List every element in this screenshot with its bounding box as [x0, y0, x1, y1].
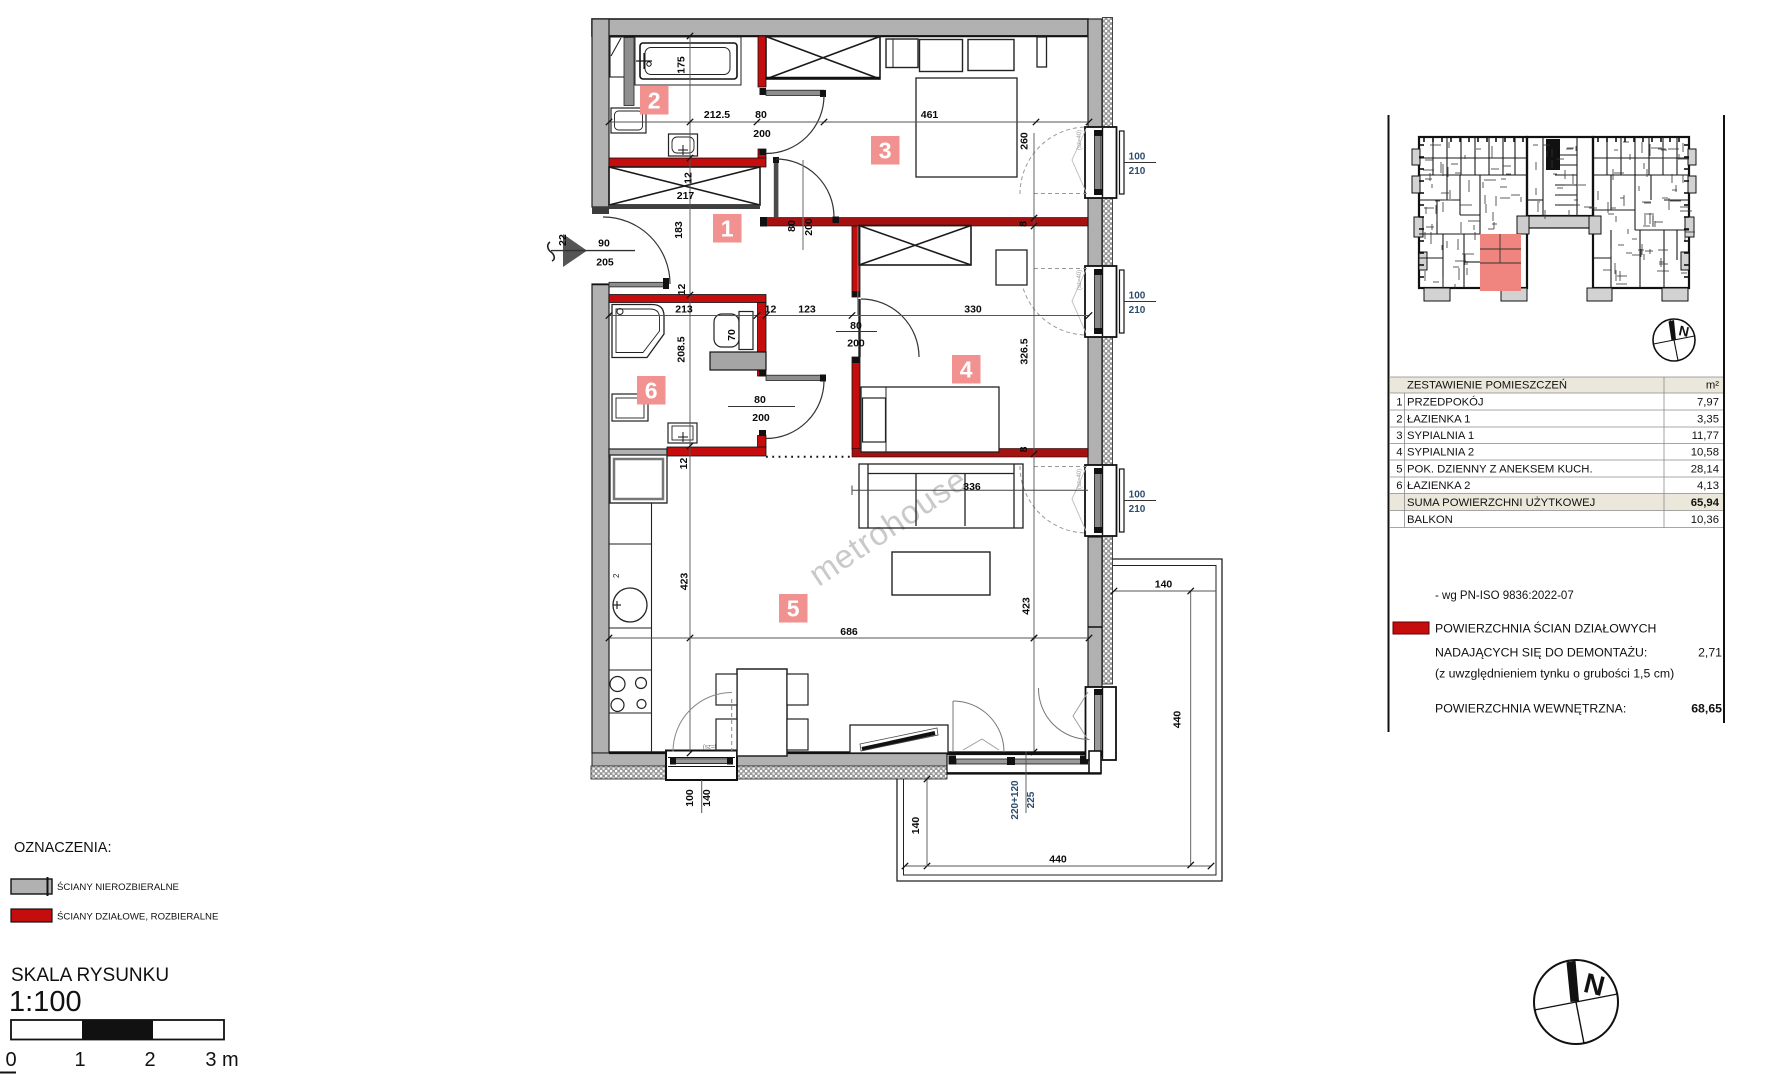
svg-text:175: 175: [676, 56, 688, 74]
svg-text:208.5: 208.5: [676, 336, 688, 362]
svg-text:ŁAZIENKA 2: ŁAZIENKA 2: [1407, 480, 1470, 492]
svg-text:28,14: 28,14: [1691, 464, 1719, 476]
svg-text:123: 123: [798, 304, 816, 316]
svg-text:3: 3: [1396, 430, 1402, 442]
svg-text:1: 1: [74, 1049, 85, 1071]
svg-text:330: 330: [964, 304, 982, 316]
svg-text:8: 8: [1018, 446, 1030, 452]
svg-text:68,65: 68,65: [1691, 702, 1722, 716]
svg-text:(sz=40): (sz=40): [1077, 130, 1083, 150]
svg-text:4: 4: [1396, 447, 1402, 459]
svg-text:ŚCIANY DZIAŁOWE, ROZBIERALNE: ŚCIANY DZIAŁOWE, ROZBIERALNE: [57, 911, 218, 923]
svg-text:2: 2: [612, 573, 621, 578]
svg-text:m²: m²: [1706, 380, 1719, 392]
svg-text:ŁAZIENKA 1: ŁAZIENKA 1: [1407, 414, 1470, 426]
svg-text:10,36: 10,36: [1691, 514, 1719, 526]
svg-text:423: 423: [679, 573, 691, 591]
svg-text:1:100: 1:100: [9, 986, 82, 1018]
svg-text:ZESTAWIENIE POMIESZCZEŃ: ZESTAWIENIE POMIESZCZEŃ: [1407, 379, 1567, 392]
svg-text:OZNACZENIA:: OZNACZENIA:: [14, 840, 111, 856]
svg-text:BALKON: BALKON: [1407, 514, 1453, 526]
svg-text:140: 140: [701, 789, 713, 807]
svg-text:11,77: 11,77: [1692, 430, 1719, 442]
svg-text:2: 2: [648, 88, 661, 114]
svg-text:225: 225: [1026, 791, 1037, 808]
svg-text:200: 200: [752, 412, 770, 424]
svg-text:217: 217: [677, 190, 695, 202]
svg-text:80: 80: [786, 220, 798, 232]
svg-text:SUMA POWIERZCHNI UŻYTKOWEJ: SUMA POWIERZCHNI UŻYTKOWEJ: [1407, 496, 1595, 509]
svg-text:2: 2: [1396, 414, 1402, 426]
svg-text:0: 0: [5, 1049, 16, 1071]
svg-text:8: 8: [1018, 221, 1030, 227]
svg-text:2,71: 2,71: [1698, 646, 1722, 660]
svg-text:POWIERZCHNIA WEWNĘTRZNA:: POWIERZCHNIA WEWNĘTRZNA:: [1435, 702, 1626, 716]
svg-text:(sz=40): (sz=40): [1077, 270, 1083, 290]
svg-text:461: 461: [921, 109, 939, 121]
svg-text:SYPIALNIA 1: SYPIALNIA 1: [1407, 430, 1474, 442]
svg-text:686: 686: [840, 626, 858, 638]
svg-text:100: 100: [1129, 291, 1146, 302]
svg-text:423: 423: [1021, 597, 1033, 615]
svg-text:1: 1: [721, 216, 734, 242]
svg-text:220+120: 220+120: [1010, 780, 1021, 820]
svg-text:3: 3: [879, 138, 892, 164]
svg-text:100: 100: [684, 789, 696, 807]
svg-text:440: 440: [1172, 711, 1184, 729]
svg-text:- wg PN-ISO 9836:2022-07: - wg PN-ISO 9836:2022-07: [1435, 590, 1574, 602]
svg-text:336: 336: [963, 481, 981, 493]
svg-text:100: 100: [1129, 490, 1146, 501]
svg-text:6: 6: [645, 378, 658, 404]
svg-text:12: 12: [676, 284, 688, 296]
svg-text:12: 12: [765, 304, 777, 316]
svg-text:4: 4: [960, 357, 973, 383]
svg-text:183: 183: [673, 221, 685, 239]
svg-text:3 m: 3 m: [205, 1049, 238, 1071]
svg-text:NADAJĄCYCH SIĘ DO DEMONTAŻU:: NADAJĄCYCH SIĘ DO DEMONTAŻU:: [1435, 646, 1647, 660]
svg-text:80: 80: [754, 394, 766, 406]
svg-text:3,35: 3,35: [1697, 414, 1719, 426]
svg-text:200: 200: [847, 338, 865, 350]
svg-text:210: 210: [1129, 166, 1146, 177]
svg-text:1: 1: [1396, 397, 1402, 409]
svg-text:326.5: 326.5: [1019, 338, 1031, 364]
svg-text:213: 213: [675, 304, 693, 316]
svg-text:140: 140: [1155, 579, 1173, 591]
svg-text:SKALA RYSUNKU: SKALA RYSUNKU: [11, 965, 169, 986]
svg-text:(sz=40): (sz=40): [1077, 469, 1083, 489]
svg-text:260: 260: [1019, 132, 1031, 150]
svg-text:200: 200: [803, 218, 815, 236]
svg-text:22: 22: [557, 234, 569, 246]
svg-text:65,94: 65,94: [1691, 497, 1720, 509]
svg-text:4,13: 4,13: [1697, 480, 1719, 492]
svg-text:70: 70: [726, 329, 738, 341]
svg-text:12: 12: [678, 458, 690, 470]
svg-text:210: 210: [1129, 305, 1146, 316]
svg-text:7,97: 7,97: [1697, 397, 1719, 409]
svg-text:6: 6: [1396, 480, 1402, 492]
svg-text:90: 90: [598, 238, 610, 250]
svg-text:PRZEDPOKÓJ: PRZEDPOKÓJ: [1407, 396, 1484, 409]
svg-text:5: 5: [787, 596, 800, 622]
svg-text:POWIERZCHNIA ŚCIAN DZIAŁOWYCH: POWIERZCHNIA ŚCIAN DZIAŁOWYCH: [1435, 621, 1656, 636]
svg-text:80: 80: [850, 320, 862, 332]
svg-text:200: 200: [753, 128, 771, 140]
svg-text:2: 2: [144, 1049, 155, 1071]
svg-text:440: 440: [1049, 854, 1067, 866]
svg-text:205: 205: [596, 257, 614, 269]
svg-text:140: 140: [910, 817, 922, 835]
svg-text:210: 210: [1129, 504, 1146, 515]
svg-text:100: 100: [1129, 152, 1146, 163]
svg-text:10,58: 10,58: [1691, 447, 1719, 459]
svg-text:(z uwzględnieniem tynku o grub: (z uwzględnieniem tynku o grubości 1,5 c…: [1435, 667, 1674, 681]
svg-text:12: 12: [683, 172, 695, 184]
svg-text:ŚCIANY NIEROZBIERALNE: ŚCIANY NIEROZBIERALNE: [57, 881, 179, 893]
svg-text:5: 5: [1396, 464, 1402, 476]
svg-text:SYPIALNIA 2: SYPIALNIA 2: [1407, 447, 1474, 459]
svg-text:80: 80: [755, 109, 767, 121]
svg-text:212.5: 212.5: [704, 109, 730, 121]
svg-text:POK. DZIENNY Z ANEKSEM KUCH.: POK. DZIENNY Z ANEKSEM KUCH.: [1407, 464, 1593, 476]
